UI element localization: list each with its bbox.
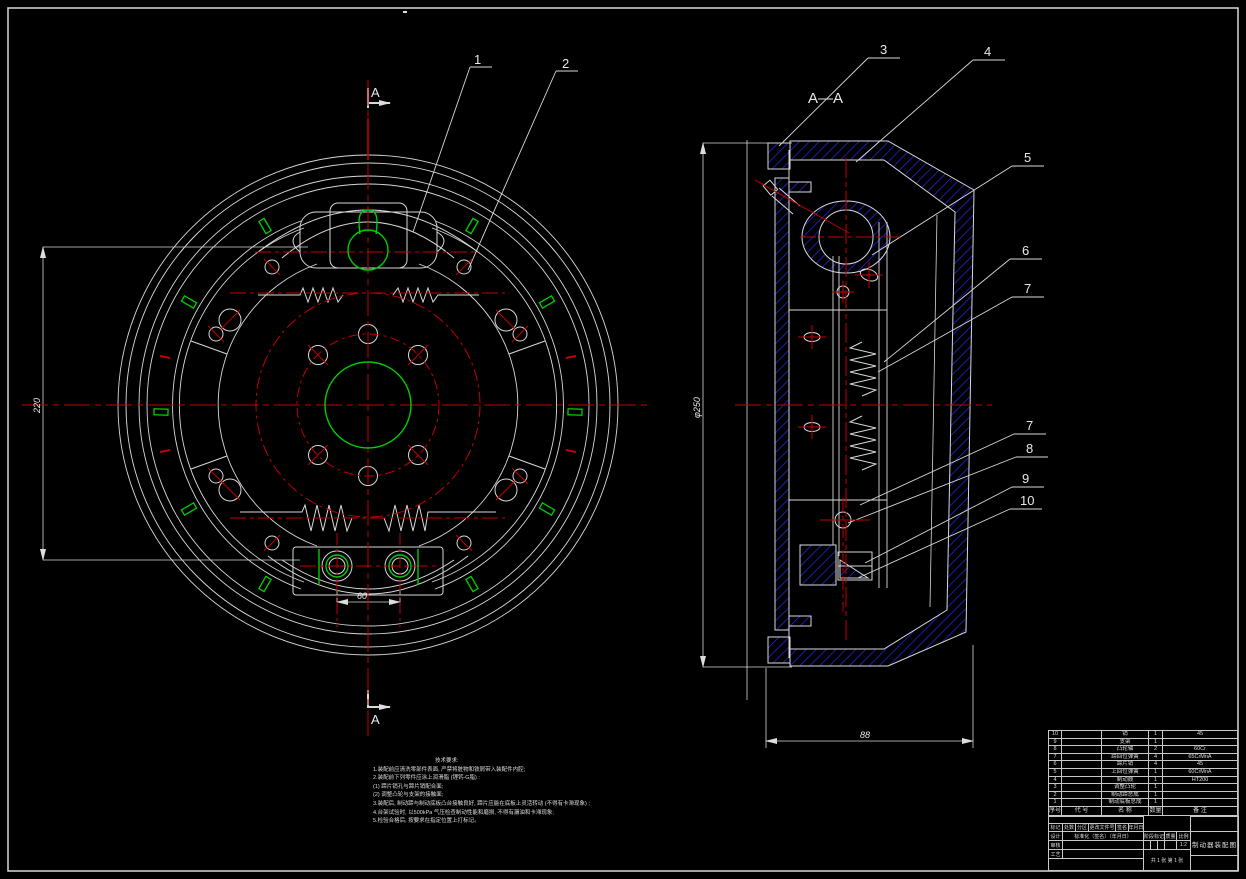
part-code (1061, 768, 1101, 776)
cad-drawing-canvas: 1 2 3 4 5 6 7 7 8 9 10 A A A—A 60 88 220… (0, 0, 1246, 879)
part-qty: 1 (1148, 738, 1162, 746)
part-remark (1162, 791, 1238, 799)
part-code (1061, 783, 1101, 791)
part-no: 8 (1048, 745, 1061, 753)
parts-list-header: 序号 代 号 名 称 数量 备 注 (1048, 806, 1239, 816)
section-mark-bottom (368, 690, 390, 708)
part-code (1061, 730, 1101, 738)
part-qty: 1 (1148, 776, 1162, 784)
part-name: 蹄回位弹簧 (1101, 753, 1148, 761)
balloon-8: 8 (1026, 441, 1033, 456)
part-no: 9 (1048, 738, 1061, 746)
part-no: 3 (1048, 783, 1061, 791)
part-no: 5 (1048, 768, 1061, 776)
parts-row-3: 3 调整凸轮 1 (1048, 783, 1239, 791)
bottom-left-cell (1048, 858, 1144, 871)
dim-text-drum-dia: φ250 (692, 397, 702, 418)
balloon-4: 4 (984, 44, 991, 59)
part-name: 支架 (1101, 738, 1148, 746)
parts-row-6: 6 蹄片销 4 45 (1048, 760, 1239, 768)
sheet-info: 共 1 张 第 1 张 (1143, 849, 1191, 871)
part-no: 6 (1048, 760, 1061, 768)
balloon-9: 9 (1022, 471, 1029, 486)
note-line: 2.装配前下列零件应涂上润滑脂 (锂钙-G脂) : (373, 774, 683, 783)
part-qty: 4 (1148, 753, 1162, 761)
part-qty: 1 (1148, 791, 1162, 799)
dim-text-220: 220 (32, 398, 42, 414)
section-spring-upper (850, 342, 876, 396)
dim-text-88: 88 (860, 730, 870, 740)
header-code: 代 号 (1061, 806, 1101, 816)
section-view-title: A—A (808, 90, 843, 107)
backing-plate-section (775, 178, 789, 630)
part-remark: 60Cr (1162, 745, 1238, 753)
note-line: 5.检验合格后, 按要求在指定位置上打标记。 (373, 817, 683, 826)
part-remark: 60CrMnA (1162, 768, 1238, 776)
part-code (1061, 738, 1101, 746)
balloon-7b: 7 (1026, 418, 1033, 433)
header-remark: 备 注 (1162, 806, 1238, 816)
section-view (703, 58, 1048, 748)
leader-2 (468, 71, 578, 270)
notes-title: 技术要求: (373, 757, 683, 766)
balloon-6: 6 (1022, 243, 1029, 258)
part-no: 7 (1048, 753, 1061, 761)
header-qty: 数量 (1148, 806, 1162, 816)
header-name: 名 称 (1101, 806, 1148, 816)
balloon-7: 7 (1024, 281, 1031, 296)
part-qty: 2 (1148, 745, 1162, 753)
note-line: 1.装配前应清洗零部件表面, 严禁将脏物和铁屑带入装配件内腔; (373, 766, 683, 775)
balloon-1: 1 (474, 52, 481, 67)
parts-row-1: 1 制动底板总成 1 (1048, 798, 1239, 806)
parts-row-8: 8 凸轮轴 2 60Cr (1048, 745, 1239, 753)
dim-text-60: 60 (357, 591, 367, 601)
parts-row-2: 2 制动蹄总成 1 (1048, 791, 1239, 799)
parts-row-10: 10 销 1 45 (1048, 730, 1239, 738)
note-line: (1) 蹄片销孔与蹄片销配合面; (373, 783, 683, 792)
balloon-5: 5 (1024, 150, 1031, 165)
part-code (1061, 798, 1101, 806)
title-block: 标记 处数 分区 更改文件号 签名 年月日 设计 标准化（签名）（年月日） 审核… (1048, 816, 1239, 871)
part-code (1061, 791, 1101, 799)
part-qty: 1 (1148, 768, 1162, 776)
part-no: 2 (1048, 791, 1061, 799)
adjuster-section (800, 545, 872, 585)
header-no: 序号 (1048, 806, 1061, 816)
part-remark: HT200 (1162, 776, 1238, 784)
part-name: 销 (1101, 730, 1148, 738)
part-name: 调整凸轮 (1101, 783, 1148, 791)
section-spring-lower (850, 416, 876, 470)
section-letter-top: A (371, 85, 380, 100)
company-box (1190, 816, 1239, 832)
part-name: 上回位弹簧 (1101, 768, 1148, 776)
balloon-10: 10 (1020, 493, 1034, 508)
parts-row-4: 4 制动鼓 1 HT200 (1048, 776, 1239, 784)
parts-row-5: 5 上回位弹簧 1 60CrMnA (1048, 768, 1239, 776)
part-name: 蹄片销 (1101, 760, 1148, 768)
balloon-3: 3 (880, 42, 887, 57)
part-no: 10 (1048, 730, 1061, 738)
parts-row-7: 7 蹄回位弹簧 4 65CrMnA (1048, 753, 1239, 761)
part-remark (1162, 798, 1238, 806)
part-no: 4 (1048, 776, 1061, 784)
part-qty: 1 (1148, 783, 1162, 791)
part-code (1061, 776, 1101, 784)
part-code (1061, 760, 1101, 768)
part-name: 制动底板总成 (1101, 798, 1148, 806)
part-no: 1 (1048, 798, 1061, 806)
drum-lip-top (768, 143, 790, 169)
part-qty: 4 (1148, 760, 1162, 768)
part-code (1061, 753, 1101, 761)
part-remark: 45 (1162, 760, 1238, 768)
parts-list: 10 销 1 45 9 支架 1 8 凸轮轴 2 60Cr 7 蹄回位弹簧 4 … (1048, 730, 1239, 816)
front-view (43, 67, 618, 708)
part-remark: 45 (1162, 730, 1238, 738)
part-qty: 1 (1148, 730, 1162, 738)
part-qty: 1 (1148, 798, 1162, 806)
part-remark (1162, 738, 1238, 746)
part-name: 制动鼓 (1101, 776, 1148, 784)
frame-center-tick (403, 11, 407, 13)
leader-1 (413, 67, 492, 232)
part-remark (1162, 783, 1238, 791)
part-remark: 65CrMnA (1162, 753, 1238, 761)
drawing-title: 制动器装配图 (1190, 831, 1239, 856)
part-name: 制动蹄总成 (1101, 791, 1148, 799)
part-name: 凸轮轴 (1101, 745, 1148, 753)
note-line: 3.装配后, 制动蹄与制动底板凸台接触良好, 蹄片应能在底板上灵活转动 (不得有… (373, 800, 683, 809)
section-letter-bottom: A (371, 712, 380, 727)
part-code (1061, 745, 1101, 753)
note-line: (2) 调整凸轮与支架的接触面; (373, 791, 683, 800)
drum-lip-bottom (768, 637, 790, 663)
upper-return-spring-right (393, 288, 479, 302)
parts-row-9: 9 支架 1 (1048, 738, 1239, 746)
technical-notes: 技术要求: 1.装配前应清洗零部件表面, 严禁将脏物和铁屑带入装配件内腔; 2.… (373, 757, 683, 826)
balloon-2: 2 (562, 56, 569, 71)
note-line: 4.台架试验时, 以500kPa 气压检查制动性能和磨损, 不得有漏油和卡滞现象… (373, 809, 683, 818)
drawing-number-box (1190, 855, 1239, 871)
